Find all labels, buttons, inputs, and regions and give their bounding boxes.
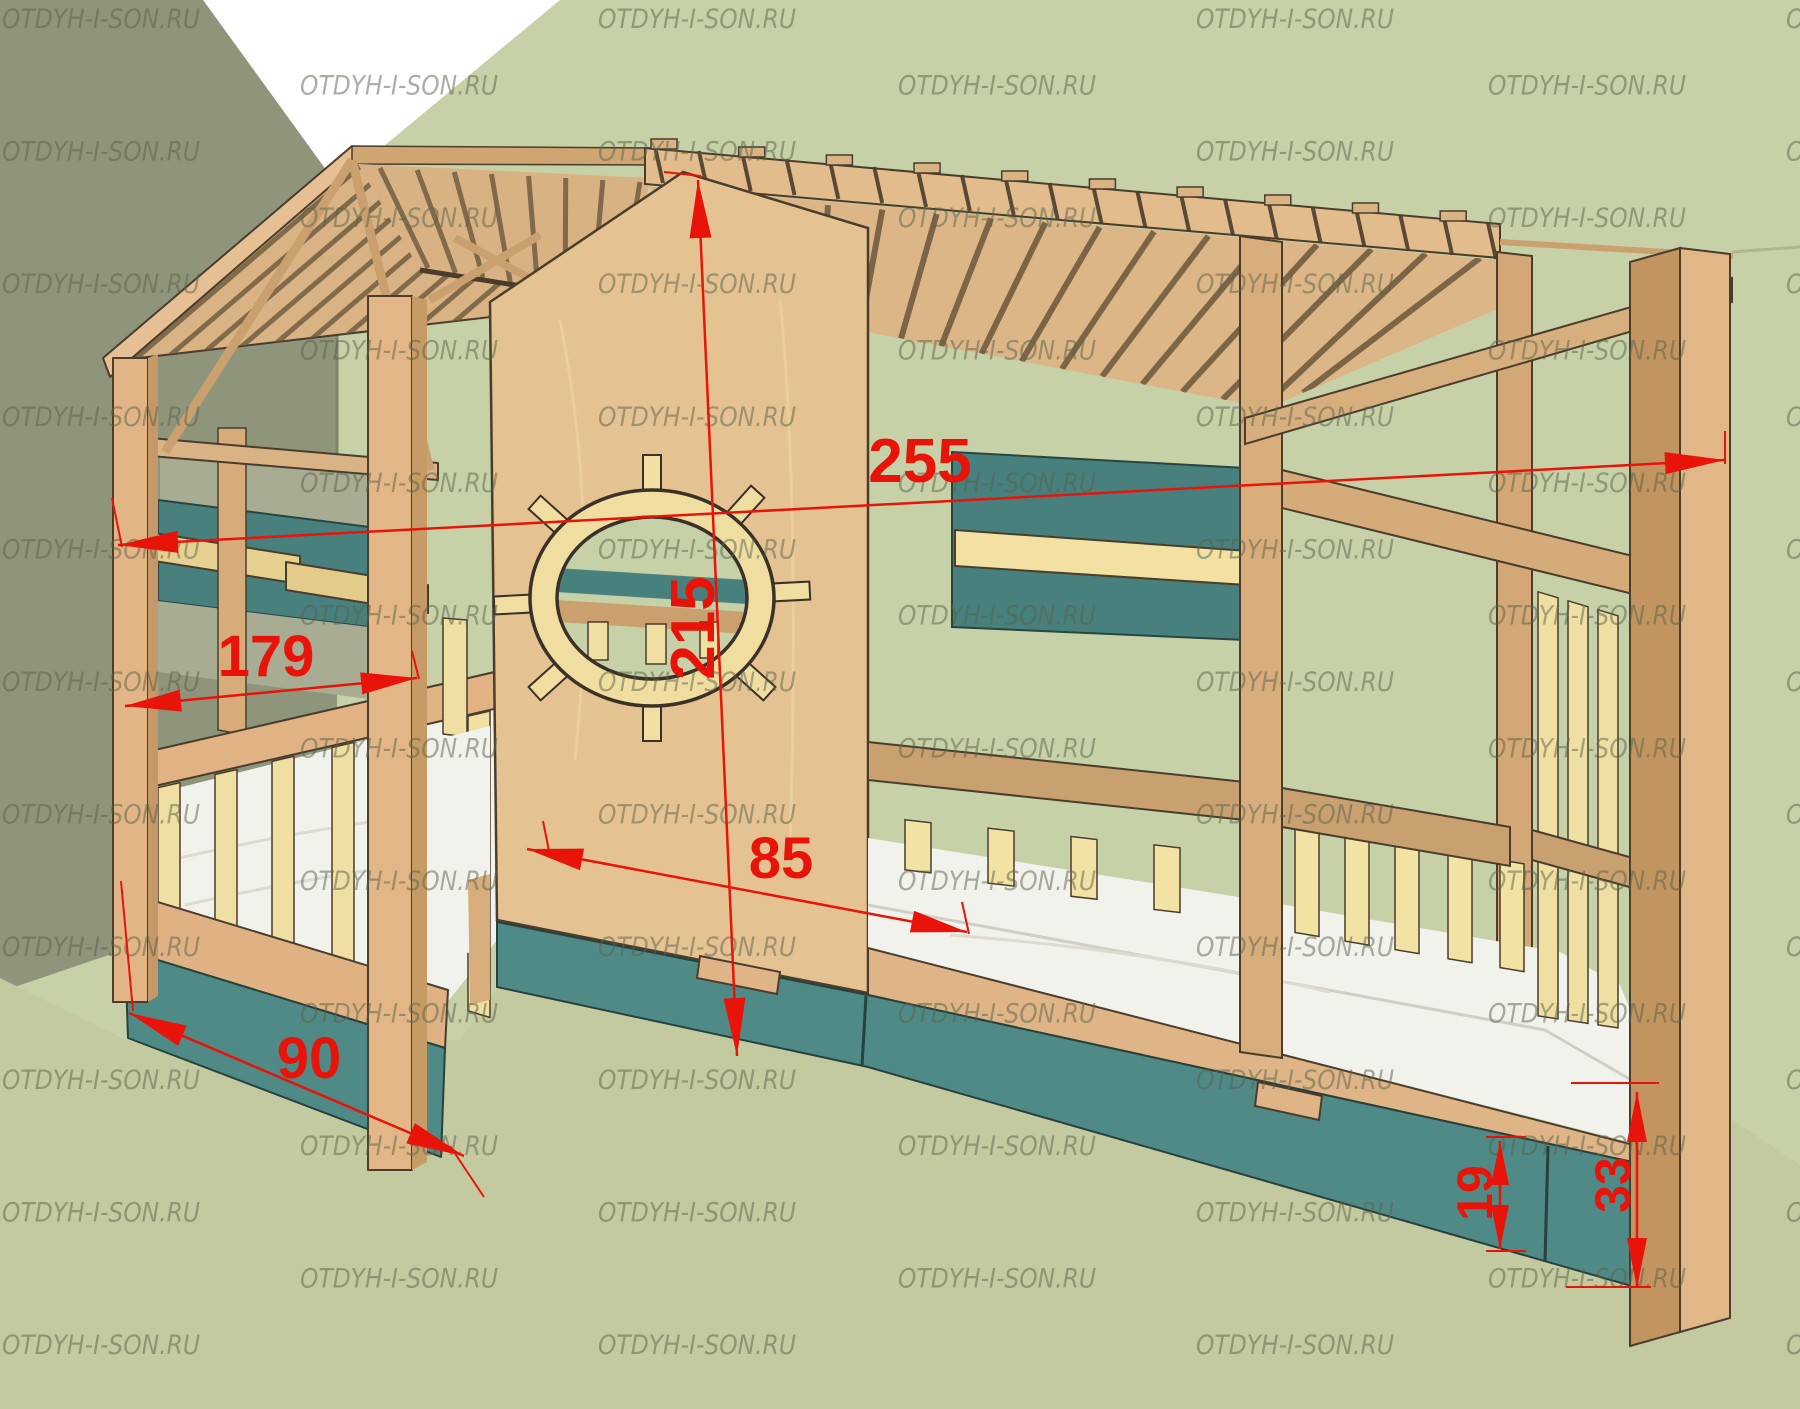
- watermark-text: OTDYH-I-SON.RU: [300, 1264, 498, 1295]
- footboard-slat: [1598, 610, 1618, 1028]
- watermark-text: OTDYH-I-SON.RU: [898, 733, 1096, 764]
- railing-slat: [1448, 851, 1472, 963]
- railing-slat: [272, 756, 294, 958]
- batten-end: [1002, 171, 1028, 181]
- watermark-text: OTDYH-I-SON.RU: [300, 70, 498, 101]
- watermark-text: OTDYH-I-SON.RU: [1488, 999, 1686, 1030]
- watermark-text: OTDYH-I-SON.RU: [1786, 534, 1800, 565]
- footboard-slat: [1568, 601, 1588, 1024]
- corner-post-front: [1680, 248, 1730, 1332]
- batten-end: [1089, 179, 1115, 189]
- watermark-text: OTDYH-I-SON.RU: [1196, 932, 1394, 963]
- watermark-text: OTDYH-I-SON.RU: [1196, 800, 1394, 831]
- railing-slat: [1295, 825, 1319, 936]
- watermark-text: OTDYH-I-SON.RU: [1786, 1065, 1800, 1096]
- diagram-page: OTDYH-I-SON.RUOTDYH-I-SON.RUOTDYH-I-SON.…: [0, 0, 1800, 1409]
- watermark-text: OTDYH-I-SON.RU: [1196, 402, 1394, 433]
- watermark-text: OTDYH-I-SON.RU: [1786, 402, 1800, 433]
- railing-slat: [1345, 834, 1369, 945]
- watermark-text: OTDYH-I-SON.RU: [1786, 800, 1800, 831]
- batten-end: [914, 163, 940, 173]
- railing-slat: [215, 769, 237, 941]
- watermark-text: OTDYH-I-SON.RU: [1196, 269, 1394, 300]
- watermark-text: OTDYH-I-SON.RU: [1786, 137, 1800, 168]
- watermark-text: OTDYH-I-SON.RU: [598, 932, 796, 963]
- footboard-slats: [1538, 592, 1618, 1028]
- watermark-text: OTDYH-I-SON.RU: [898, 999, 1096, 1030]
- railing-slat: [1154, 845, 1180, 913]
- watermark-text: OTDYH-I-SON.RU: [1488, 1264, 1686, 1295]
- watermark-text: OTDYH-I-SON.RU: [598, 137, 796, 168]
- batten-end: [1265, 195, 1291, 205]
- watermark-text: OTDYH-I-SON.RU: [1786, 4, 1800, 35]
- watermark-text: OTDYH-I-SON.RU: [300, 468, 498, 499]
- watermark-text: OTDYH-I-SON.RU: [1786, 1330, 1800, 1361]
- watermark-text: OTDYH-I-SON.RU: [598, 1330, 796, 1361]
- watermark-text: OTDYH-I-SON.RU: [2, 269, 200, 300]
- watermark-text: OTDYH-I-SON.RU: [598, 4, 796, 35]
- watermark-text: OTDYH-I-SON.RU: [898, 1264, 1096, 1295]
- watermark-text: OTDYH-I-SON.RU: [1488, 70, 1686, 101]
- watermark-text: OTDYH-I-SON.RU: [1488, 866, 1686, 897]
- watermark-text: OTDYH-I-SON.RU: [300, 999, 498, 1030]
- watermark-text: OTDYH-I-SON.RU: [300, 1131, 498, 1162]
- watermark-text: OTDYH-I-SON.RU: [2, 4, 200, 35]
- dimension-label-215: 215: [659, 576, 728, 679]
- watermark-text: OTDYH-I-SON.RU: [1488, 203, 1686, 234]
- watermark-text: OTDYH-I-SON.RU: [1488, 468, 1686, 499]
- watermark-text: OTDYH-I-SON.RU: [2, 1065, 200, 1096]
- porthole-window: [494, 455, 811, 741]
- bed-dimension-diagram: OTDYH-I-SON.RUOTDYH-I-SON.RUOTDYH-I-SON.…: [0, 0, 1800, 1409]
- dimension-label-179: 179: [218, 624, 315, 689]
- porthole-view-slat: [588, 622, 608, 660]
- dimension-label-85: 85: [749, 826, 814, 891]
- watermark-text: OTDYH-I-SON.RU: [2, 402, 200, 433]
- watermark-text: OTDYH-I-SON.RU: [300, 733, 498, 764]
- watermark-text: OTDYH-I-SON.RU: [1488, 733, 1686, 764]
- watermark-text: OTDYH-I-SON.RU: [1488, 601, 1686, 632]
- dimension-label-19: 19: [1447, 1165, 1503, 1221]
- watermark-text: OTDYH-I-SON.RU: [898, 336, 1096, 367]
- watermark-text: OTDYH-I-SON.RU: [598, 1065, 796, 1096]
- watermark-text: OTDYH-I-SON.RU: [598, 1197, 796, 1228]
- watermark-text: OTDYH-I-SON.RU: [300, 866, 498, 897]
- watermark-text: OTDYH-I-SON.RU: [898, 70, 1096, 101]
- batten-end: [1352, 203, 1378, 213]
- watermark-text: OTDYH-I-SON.RU: [1196, 4, 1394, 35]
- railing-slat: [1395, 842, 1419, 954]
- watermark-text: OTDYH-I-SON.RU: [1786, 1197, 1800, 1228]
- watermark-text: OTDYH-I-SON.RU: [898, 203, 1096, 234]
- watermark-text: OTDYH-I-SON.RU: [2, 1330, 200, 1361]
- footboard-slat: [1538, 592, 1558, 1019]
- watermark-text: OTDYH-I-SON.RU: [300, 336, 498, 367]
- corner-slat: [443, 618, 467, 737]
- dimension-label-90: 90: [277, 1026, 342, 1091]
- dimension-label-255: 255: [868, 427, 971, 496]
- watermark-text: OTDYH-I-SON.RU: [598, 534, 796, 565]
- watermark-text: OTDYH-I-SON.RU: [2, 1197, 200, 1228]
- dimension-label-33: 33: [1585, 1157, 1641, 1213]
- watermark-text: OTDYH-I-SON.RU: [1196, 1330, 1394, 1361]
- watermark-text: OTDYH-I-SON.RU: [598, 402, 796, 433]
- watermark-text: OTDYH-I-SON.RU: [1786, 269, 1800, 300]
- watermark-text: OTDYH-I-SON.RU: [1786, 932, 1800, 963]
- watermark-text: OTDYH-I-SON.RU: [1196, 1065, 1394, 1096]
- watermark-text: OTDYH-I-SON.RU: [2, 800, 200, 831]
- watermark-text: OTDYH-I-SON.RU: [598, 269, 796, 300]
- watermark-text: OTDYH-I-SON.RU: [1196, 534, 1394, 565]
- batten-end: [826, 155, 852, 165]
- watermark-text: OTDYH-I-SON.RU: [898, 1131, 1096, 1162]
- watermark-text: OTDYH-I-SON.RU: [2, 137, 200, 168]
- batten-end: [1440, 211, 1466, 221]
- watermark-text: OTDYH-I-SON.RU: [1196, 137, 1394, 168]
- railing-slat: [332, 742, 354, 976]
- watermark-text: OTDYH-I-SON.RU: [300, 203, 498, 234]
- batten-end: [1177, 187, 1203, 197]
- watermark-text: OTDYH-I-SON.RU: [898, 866, 1096, 897]
- watermark-text: OTDYH-I-SON.RU: [1786, 667, 1800, 698]
- watermark-text: OTDYH-I-SON.RU: [1196, 1197, 1394, 1228]
- watermark-text: OTDYH-I-SON.RU: [898, 601, 1096, 632]
- watermark-text: OTDYH-I-SON.RU: [1488, 336, 1686, 367]
- watermark-text: OTDYH-I-SON.RU: [2, 932, 200, 963]
- watermark-text: OTDYH-I-SON.RU: [300, 601, 498, 632]
- watermark-text: OTDYH-I-SON.RU: [1196, 667, 1394, 698]
